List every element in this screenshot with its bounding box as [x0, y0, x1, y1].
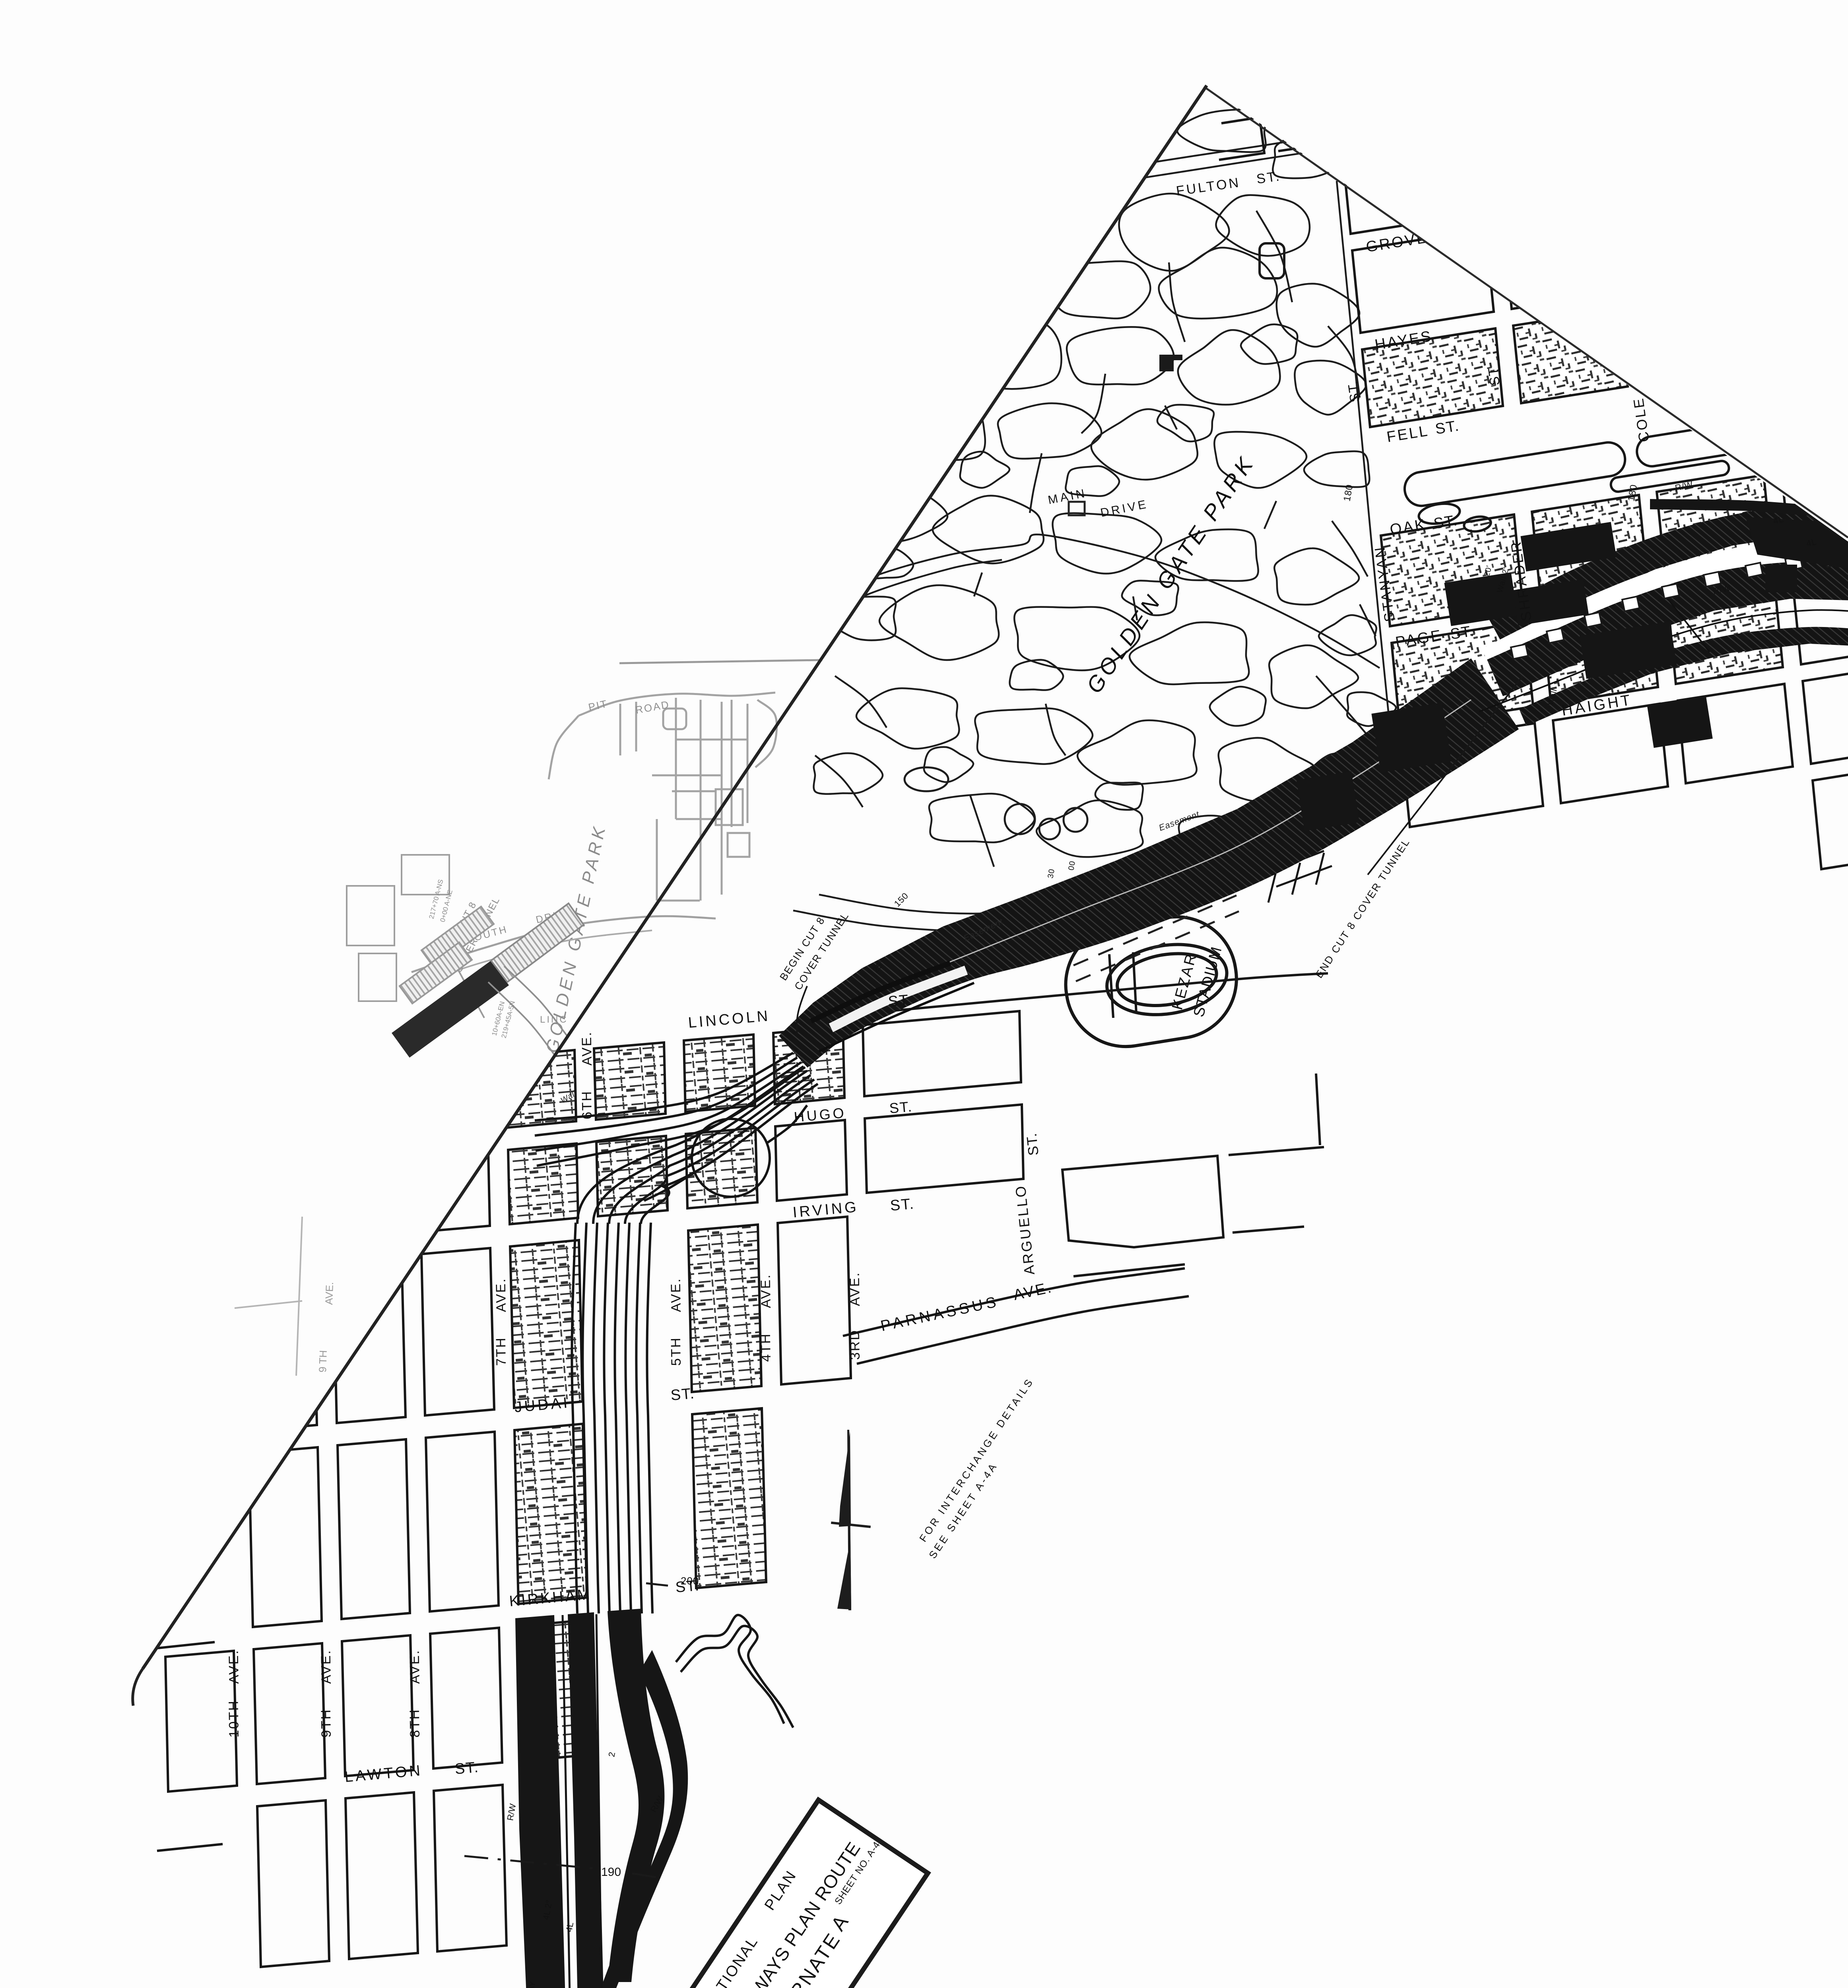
svg-text:ST: ST — [1485, 366, 1503, 386]
svg-text:9TH: 9TH — [318, 1708, 334, 1738]
svg-text:ST.: ST. — [1345, 379, 1363, 403]
svg-text:8TH: 8TH — [407, 1708, 423, 1738]
svg-text:3RD: 3RD — [847, 1329, 863, 1360]
svg-text:6TH: 6TH — [579, 1090, 595, 1120]
svg-text:10TH: 10TH — [226, 1700, 242, 1738]
svg-text:AVE.: AVE. — [226, 1649, 242, 1684]
svg-text:9 TH: 9 TH — [316, 1350, 329, 1373]
svg-text:AVE.: AVE. — [407, 1649, 423, 1684]
svg-text:4L: 4L — [564, 1921, 575, 1932]
svg-text:ST.: ST. — [670, 1385, 695, 1404]
svg-text:AVE.: AVE. — [318, 1649, 334, 1684]
svg-text:AVE.: AVE. — [493, 1277, 509, 1312]
svg-text:ST.: ST. — [1023, 1132, 1042, 1156]
svg-text:ST.: ST. — [454, 1759, 479, 1778]
svg-text:30: 30 — [1046, 868, 1056, 879]
svg-text:AVE.: AVE. — [323, 1282, 336, 1305]
svg-text:ST.: ST. — [889, 1098, 913, 1116]
svg-text:ST.: ST. — [889, 1196, 915, 1214]
svg-text:LINC: LINC — [540, 1014, 568, 1025]
svg-text:5TH: 5TH — [668, 1337, 684, 1366]
svg-text:AVE.: AVE. — [668, 1277, 684, 1312]
svg-text:ST.: ST. — [887, 992, 913, 1010]
svg-text:200: 200 — [681, 1575, 699, 1587]
svg-text:7TH: 7TH — [493, 1337, 509, 1366]
svg-text:AVE.: AVE. — [579, 1031, 595, 1066]
svg-text:190: 190 — [601, 1866, 621, 1879]
svg-text:AVE.: AVE. — [758, 1274, 774, 1309]
svg-text:AVE.: AVE. — [847, 1272, 863, 1307]
svg-text:4TH: 4TH — [758, 1333, 774, 1362]
svg-text:00: 00 — [1067, 860, 1077, 871]
